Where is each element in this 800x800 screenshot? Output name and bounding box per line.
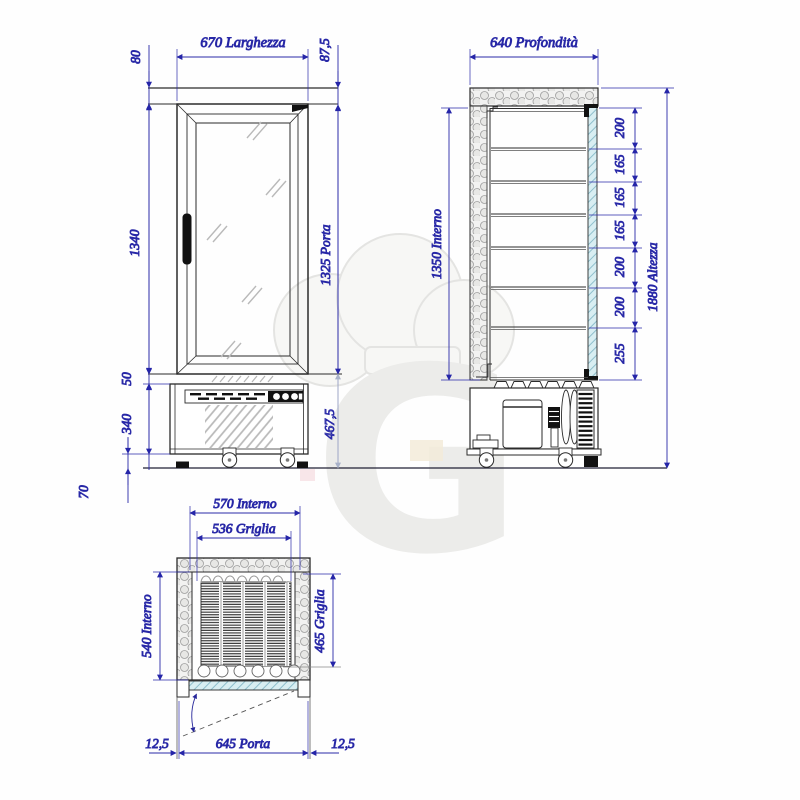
dim-shelf-gap-5: 200 (612, 257, 627, 278)
dim-plan-offset-right: 12,5 (331, 736, 355, 751)
condenser-coil (577, 390, 594, 448)
dim-shelf-gap-6: 200 (612, 297, 627, 318)
dim-side-interior: 1350 Interno (429, 209, 444, 279)
dim-front-base-right: 467,5 (322, 409, 337, 440)
dim-shelf-gap-4: 165 (612, 220, 627, 241)
top-insulation (470, 88, 598, 106)
side-view (467, 88, 601, 467)
dim-front-cap: 80 (128, 50, 143, 64)
door-swing-dashed (183, 691, 294, 736)
dim-shelf-gap-1: 200 (612, 118, 627, 139)
door-hinge (292, 105, 308, 112)
dim-shelf-gap-3: 165 (612, 187, 627, 208)
dim-plan-interior-width: 570 Interno (213, 496, 277, 511)
dim-plan-door: 645 Porta (216, 736, 271, 751)
vent-slashes (212, 376, 273, 382)
dim-front-clearance: 70 (76, 485, 91, 499)
dim-front-gap: 50 (119, 372, 134, 386)
dim-front-body: 1340 (127, 229, 142, 256)
dim-front-door: 1325 Porta (318, 224, 333, 285)
plan-left-insulation (177, 572, 192, 680)
plan-door-glass (189, 681, 298, 690)
dim-side-depth: 640 Profondità (490, 35, 578, 51)
refrigerated-cabinet-drawing: G (0, 0, 800, 800)
door-handle (183, 214, 191, 264)
dim-plan-grid-width: 536 Griglia (212, 521, 276, 536)
plan-right-insulation (295, 572, 310, 680)
dim-front-cap-right: 87,5 (317, 38, 332, 62)
dim-shelf-gap-7: 255 (612, 343, 627, 364)
back-wall-insulation (470, 106, 487, 380)
technical-drawing-page: G (0, 0, 800, 800)
dim-plan-interior-depth: 540 Interno (139, 594, 154, 658)
door-swing-arc (192, 694, 197, 732)
glass-door-side (588, 107, 597, 378)
dim-front-base: 340 (119, 414, 134, 436)
dim-shelf-gap-2: 165 (612, 154, 627, 175)
dim-plan-offset-left: 12,5 (145, 736, 169, 751)
vent-grille-hatch (205, 405, 273, 448)
dim-front-width: 670 Larghezza (200, 35, 285, 51)
dim-plan-grid-depth: 465 Griglia (312, 589, 327, 653)
wire-grid-shelf (201, 582, 291, 666)
dim-side-height: 1880 Altezza (645, 242, 660, 311)
